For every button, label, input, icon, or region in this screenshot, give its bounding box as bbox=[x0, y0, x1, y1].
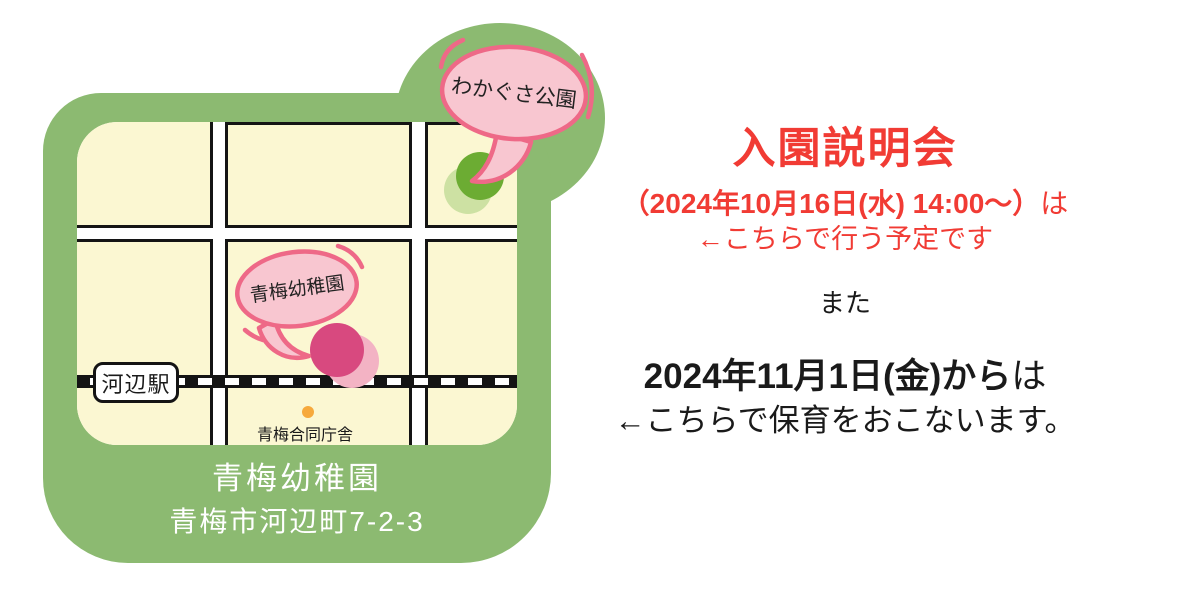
city-block bbox=[425, 239, 517, 378]
city-block bbox=[77, 239, 213, 378]
map-card: 河辺駅 青梅合同庁舎 青梅幼稚園 青梅市河辺町7-2-3 bbox=[43, 93, 551, 563]
kindergarten-address: 青梅市河辺町7-2-3 bbox=[43, 503, 551, 541]
start-date: 2024年11月1日(金)から bbox=[644, 357, 1012, 396]
gov-office-label: 青梅合同庁舎 bbox=[205, 421, 405, 445]
gov-office-marker-dot bbox=[302, 406, 314, 418]
city-block bbox=[77, 122, 213, 228]
kindergarten-name: 青梅幼稚園 bbox=[43, 459, 551, 499]
map-card-footer: 青梅幼稚園 青梅市河辺町7-2-3 bbox=[43, 459, 551, 541]
start-date-suffix: は bbox=[1011, 357, 1046, 396]
city-block bbox=[225, 122, 412, 228]
session-date: （2024年10月16日(水) 14:00〜） bbox=[622, 188, 1041, 219]
connector-text: また bbox=[590, 286, 1100, 320]
start-date-line: 2024年11月1日(金)からは bbox=[590, 354, 1100, 400]
city-block bbox=[425, 385, 517, 445]
session-note: ←こちらで行う予定です bbox=[590, 222, 1100, 256]
announcement: 入園説明会 （2024年10月16日(水) 14:00〜）は ←こちらで行う予定… bbox=[590, 124, 1100, 442]
station-label: 河辺駅 bbox=[93, 362, 179, 403]
session-date-line: （2024年10月16日(水) 14:00〜）は bbox=[590, 186, 1100, 222]
flyer-canvas: 河辺駅 青梅合同庁舎 青梅幼稚園 青梅市河辺町7-2-3 わかぐさ公園 青梅幼稚… bbox=[0, 0, 1181, 591]
session-date-suffix: は bbox=[1040, 188, 1068, 219]
start-note: ←こちらで保育をおこないます。 bbox=[590, 400, 1100, 442]
park-marker-dot bbox=[456, 152, 504, 200]
announcement-title: 入園説明会 bbox=[590, 124, 1100, 174]
kindergarten-marker-dot bbox=[310, 323, 364, 377]
